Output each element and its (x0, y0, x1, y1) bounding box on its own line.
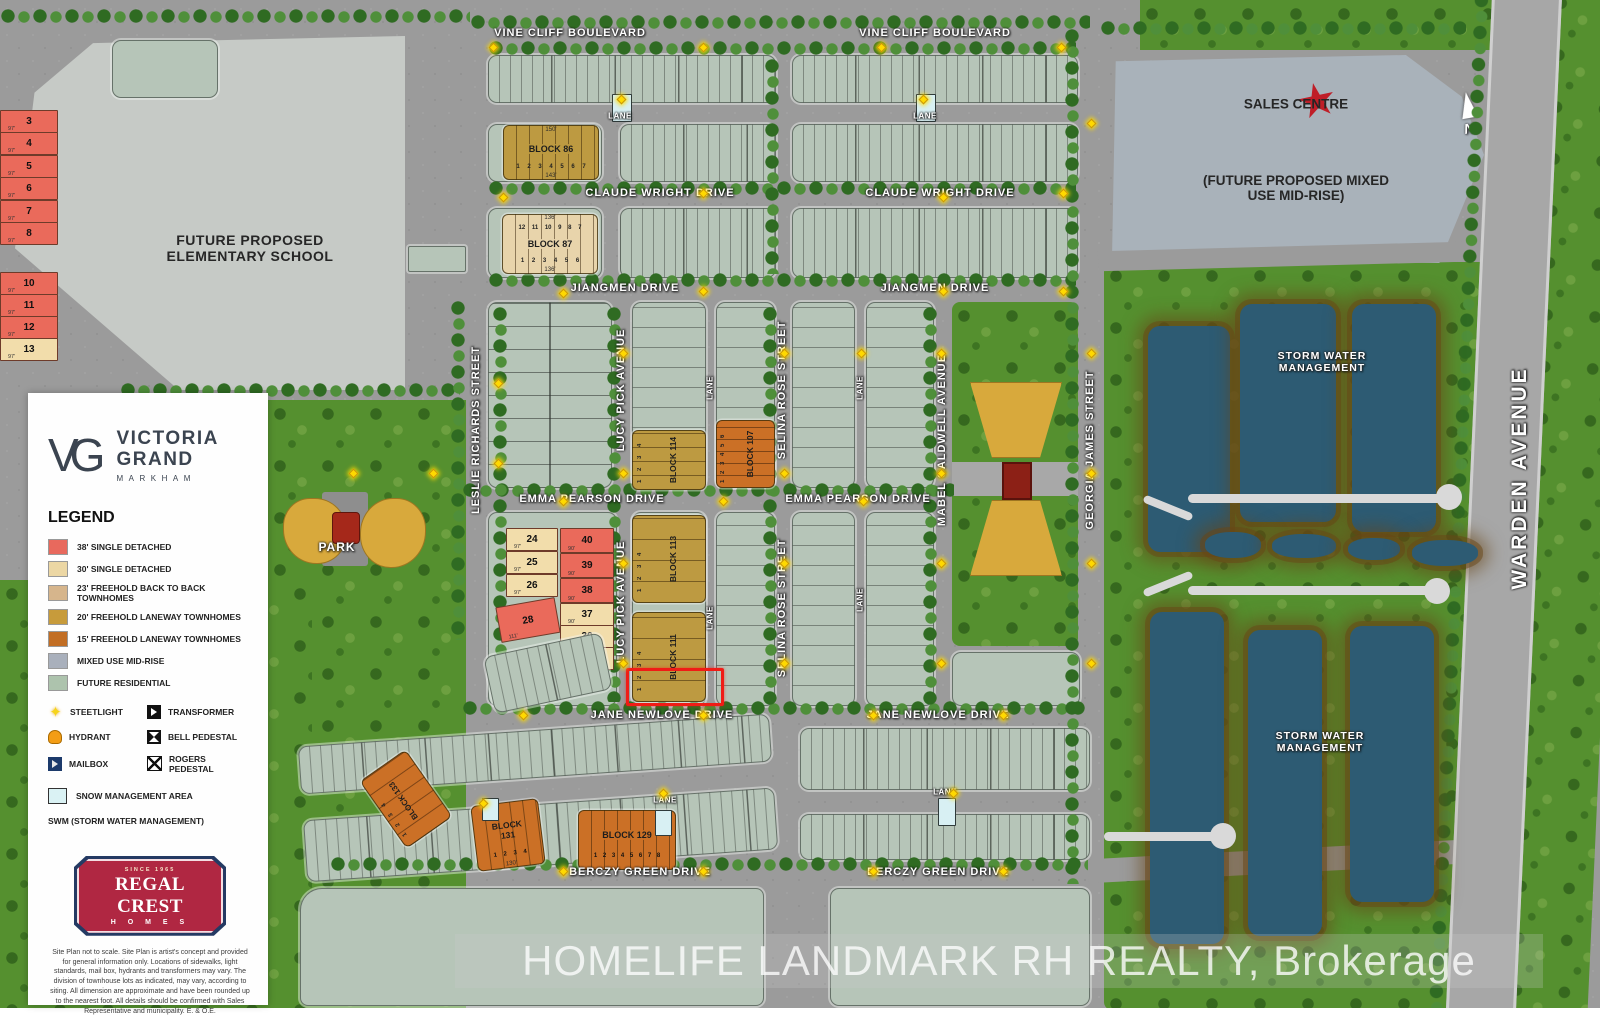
mailbox-icon (48, 757, 62, 771)
lot-10: 1097' (0, 272, 58, 295)
street-claude-wright-w: CLAUDE WRIGHT DRIVE (585, 187, 734, 199)
lot-38: 3890' (560, 578, 614, 603)
streetlight-icon (1057, 43, 1067, 53)
snow-area-icon (48, 788, 67, 804)
lot-24: 2497' (506, 528, 558, 551)
res-block (792, 302, 855, 488)
lot-6: 697' (0, 177, 58, 200)
lot-3: 397' (0, 110, 58, 133)
street-berczy-green-e: BERCZY GREEN DRIVE (867, 866, 1009, 878)
color-chip (48, 653, 68, 669)
block-113: BLOCK 113 1 2 3 4 (632, 515, 706, 603)
brand-city: MARKHAM (116, 474, 218, 483)
lane-label-v: LANE (856, 376, 865, 400)
res-block (800, 728, 1090, 790)
park-label: PARK (318, 540, 355, 554)
lane-label: LANE (913, 112, 937, 121)
lot-40: 4090' (560, 528, 614, 553)
block-86: BLOCK 86 1 2 3 4 5 6 7 150' 143' (503, 125, 599, 180)
streetlight-icon (699, 287, 709, 297)
legend-item: 30' SINGLE DETACHED (48, 561, 252, 577)
streetlight-icon (1059, 287, 1069, 297)
block-114: BLOCK 114 1 2 3 4 (632, 430, 706, 490)
site-plan-canvas: FUTURE PROPOSED ELEMENTARY SCHOOL ★ SALE… (0, 0, 1600, 1028)
legend-bell: BELL PEDESTAL (147, 730, 252, 744)
streetlight-icon (1059, 189, 1069, 199)
top-tree-line (0, 8, 470, 24)
color-chip (48, 585, 68, 601)
brand-name-2: GRAND (116, 449, 193, 470)
disclaimer-text: Site Plan not to scale. Site Plan is art… (48, 948, 252, 1017)
legend-rogers: ROGERS PEDESTAL (147, 754, 252, 774)
sales-centre-label: SALES CENTRE (1244, 97, 1348, 112)
builder-name: REGAL CREST (81, 874, 219, 918)
streetlight-icon (499, 193, 509, 203)
res-block (792, 512, 855, 706)
streetlight-icon (937, 559, 947, 569)
transformer-icon (147, 705, 161, 719)
street-mabel-caldwell: MABEL CALDWELL AVENUE (936, 354, 948, 526)
res-block (620, 124, 776, 182)
north-arrow-icon: N (1460, 92, 1476, 136)
rogers-pedestal-icon (147, 756, 162, 771)
lot-gap (408, 246, 466, 272)
plaza-green (952, 302, 1078, 646)
res-block (488, 55, 776, 103)
color-chip (48, 609, 68, 625)
streetlight-icon (559, 867, 569, 877)
cul-de-sac-end (1210, 823, 1236, 849)
streetlight-icon (877, 43, 887, 53)
street-jiangmen-w: JIANGMEN DRIVE (571, 282, 680, 294)
swm-pond (1350, 626, 1434, 902)
lane-label: LANE (608, 112, 632, 121)
swm-note: SWM (STORM WATER MANAGEMENT) (48, 816, 252, 826)
streetlight-icon (699, 43, 709, 53)
lot-11: 1197' (0, 294, 58, 317)
brand-logo: VG VICTORIA GRAND MARKHAM (48, 429, 252, 483)
cul-de-sac-end (1424, 578, 1450, 604)
lot-39: 3990' (560, 553, 614, 578)
color-chip (48, 631, 68, 647)
streetlight-icon (937, 659, 947, 669)
builder-since: SINCE 1965 (81, 867, 219, 873)
street-selina-rose-n: SELINA ROSE STREET (776, 321, 788, 460)
legend-item: 38' SINGLE DETACHED (48, 539, 252, 555)
legend-title: LEGEND (48, 509, 252, 527)
street-berczy-green-w: BERCZY GREEN DRIVE (569, 866, 711, 878)
legend-panel: VG VICTORIA GRAND MARKHAM LEGEND 38' SIN… (28, 393, 268, 1005)
plaza-monument (1002, 462, 1032, 500)
legend-item: MIXED USE MID-RISE (48, 653, 252, 669)
green-top-right (1140, 0, 1526, 50)
snow-management-square (938, 798, 956, 826)
legend-item: 23' FREEHOLD BACK TO BACK TOWNHOMES (48, 583, 252, 603)
legend-transformer: TRANSFORMER (147, 705, 252, 720)
cul-de-sac-road (1188, 586, 1436, 595)
lane-label-v: LANE (856, 588, 865, 612)
builder-badge: SINCE 1965 REGAL CREST H O M E S (74, 856, 226, 936)
legend-mailbox: MAILBOX (48, 754, 143, 774)
legend-item: 15' FREEHOLD LANEWAY TOWNHOMES (48, 631, 252, 647)
lot-25: 2597' (506, 551, 558, 574)
res-block (620, 208, 776, 278)
res-block (792, 124, 1078, 182)
street-lucy-pick-s: LUCY PICK AVENUE (615, 541, 627, 664)
streetlight-icon (1087, 119, 1097, 129)
swm-pond (1248, 630, 1322, 936)
warden-avenue-label: WARDEN AVENUE (1508, 366, 1532, 589)
streetlight-icon (1087, 659, 1097, 669)
legend-hydrant: HYDRANT (48, 730, 143, 744)
streetlight-icon (780, 469, 790, 479)
lot-4: 497' (0, 132, 58, 155)
swm-pond-small (1348, 538, 1400, 560)
streetlight-icon (1087, 559, 1097, 569)
mixed-use-label: (FUTURE PROPOSED MIXED USE MID-RISE) (1189, 173, 1404, 203)
lot-7: 797' (0, 200, 58, 223)
street-jane-newlove-w: JANE NEWLOVE DRIVE (591, 709, 734, 721)
color-chip (48, 539, 68, 555)
legend-item: 20' FREEHOLD LANEWAY TOWNHOMES (48, 609, 252, 625)
brokerage-watermark: HOMELIFE LANDMARK RH REALTY, Brokerage (455, 934, 1543, 988)
lot-13: 1397' (0, 338, 58, 361)
cul-de-sac-end (1436, 484, 1462, 510)
builder-homes: H O M E S (81, 919, 219, 926)
plaza-gold-top (970, 382, 1062, 458)
street-emma-pearson-w: EMMA PEARSON DRIVE (519, 493, 664, 505)
swm-pond-small (1412, 540, 1478, 566)
cul-de-sac-road (1104, 832, 1220, 841)
lane-label-v: LANE (706, 376, 715, 400)
street-jiangmen-e: JIANGMEN DRIVE (881, 282, 990, 294)
res-block (952, 652, 1080, 706)
tree-line (488, 40, 1076, 56)
bell-pedestal-icon (147, 730, 161, 744)
streetlight-icon (489, 43, 499, 53)
block-107: BLOCK 107 1 2 3 4 5 6 (716, 420, 775, 488)
snow-management-square (655, 810, 672, 836)
streetlight-icon (1087, 349, 1097, 359)
lot-5: 597' (0, 155, 58, 178)
lot-37: 3790' (560, 603, 614, 626)
legend-snow: SNOW MANAGEMENT AREA (48, 788, 252, 804)
res-block (866, 512, 934, 706)
res-block (792, 208, 1078, 278)
street-georgia-james: GEORGIA JAMES STREET (1084, 371, 1096, 530)
highlighted-lot-outline (626, 668, 724, 706)
block-87: 12 11 10 9 8 7 BLOCK 87 1 2 3 4 5 6 136'… (502, 214, 598, 274)
lot-12: 1297' (0, 316, 58, 339)
legend-steetlight: ✦STEETLIGHT (48, 705, 143, 720)
street-vine-cliff-e: VINE CLIFF BOULEVARD (859, 27, 1011, 39)
lot-26: 2697' (506, 574, 558, 597)
brand-name-1: VICTORIA (116, 428, 218, 449)
streetlight-icon (719, 497, 729, 507)
streetlight-icon (559, 289, 569, 299)
streetlight-icon: ✦ (48, 705, 63, 720)
swm-label-bottom: STORM WATER MANAGEMENT (1265, 730, 1375, 754)
streetlight-icon (519, 711, 529, 721)
swm-pond-small (1205, 532, 1261, 558)
street-lucy-pick-n: LUCY PICK AVENUE (615, 329, 627, 452)
lot-8: 897' (0, 222, 58, 245)
swm-label-top: STORM WATER MANAGEMENT (1267, 350, 1377, 374)
hydrant-icon (48, 730, 62, 744)
cul-de-sac-road (1188, 494, 1446, 503)
legend-item: FUTURE RESIDENTIAL (48, 675, 252, 691)
plaza-gold-bottom (970, 500, 1062, 576)
corner-block (112, 40, 218, 98)
swm-pond-small (1272, 534, 1336, 558)
swm-pond (1240, 304, 1336, 522)
color-chip (48, 561, 68, 577)
school-label: FUTURE PROPOSED ELEMENTARY SCHOOL (135, 232, 365, 264)
color-chip (48, 675, 68, 691)
lane-label-v: LANE (706, 606, 715, 630)
street-leslie-richards: LESLIE RICHARDS STREET (470, 346, 482, 514)
street-jane-newlove-e: JANE NEWLOVE DRIVE (867, 709, 1010, 721)
res-block (866, 302, 934, 488)
swm-pond (1150, 612, 1224, 944)
vg-monogram-icon: VG (48, 435, 106, 476)
street-emma-pearson-e: EMMA PEARSON DRIVE (785, 493, 930, 505)
streetlight-icon (619, 469, 629, 479)
res-block (488, 302, 612, 488)
streetlight-icon (857, 349, 867, 359)
res-block (716, 512, 775, 706)
street-vine-cliff-w: VINE CLIFF BOULEVARD (494, 27, 646, 39)
